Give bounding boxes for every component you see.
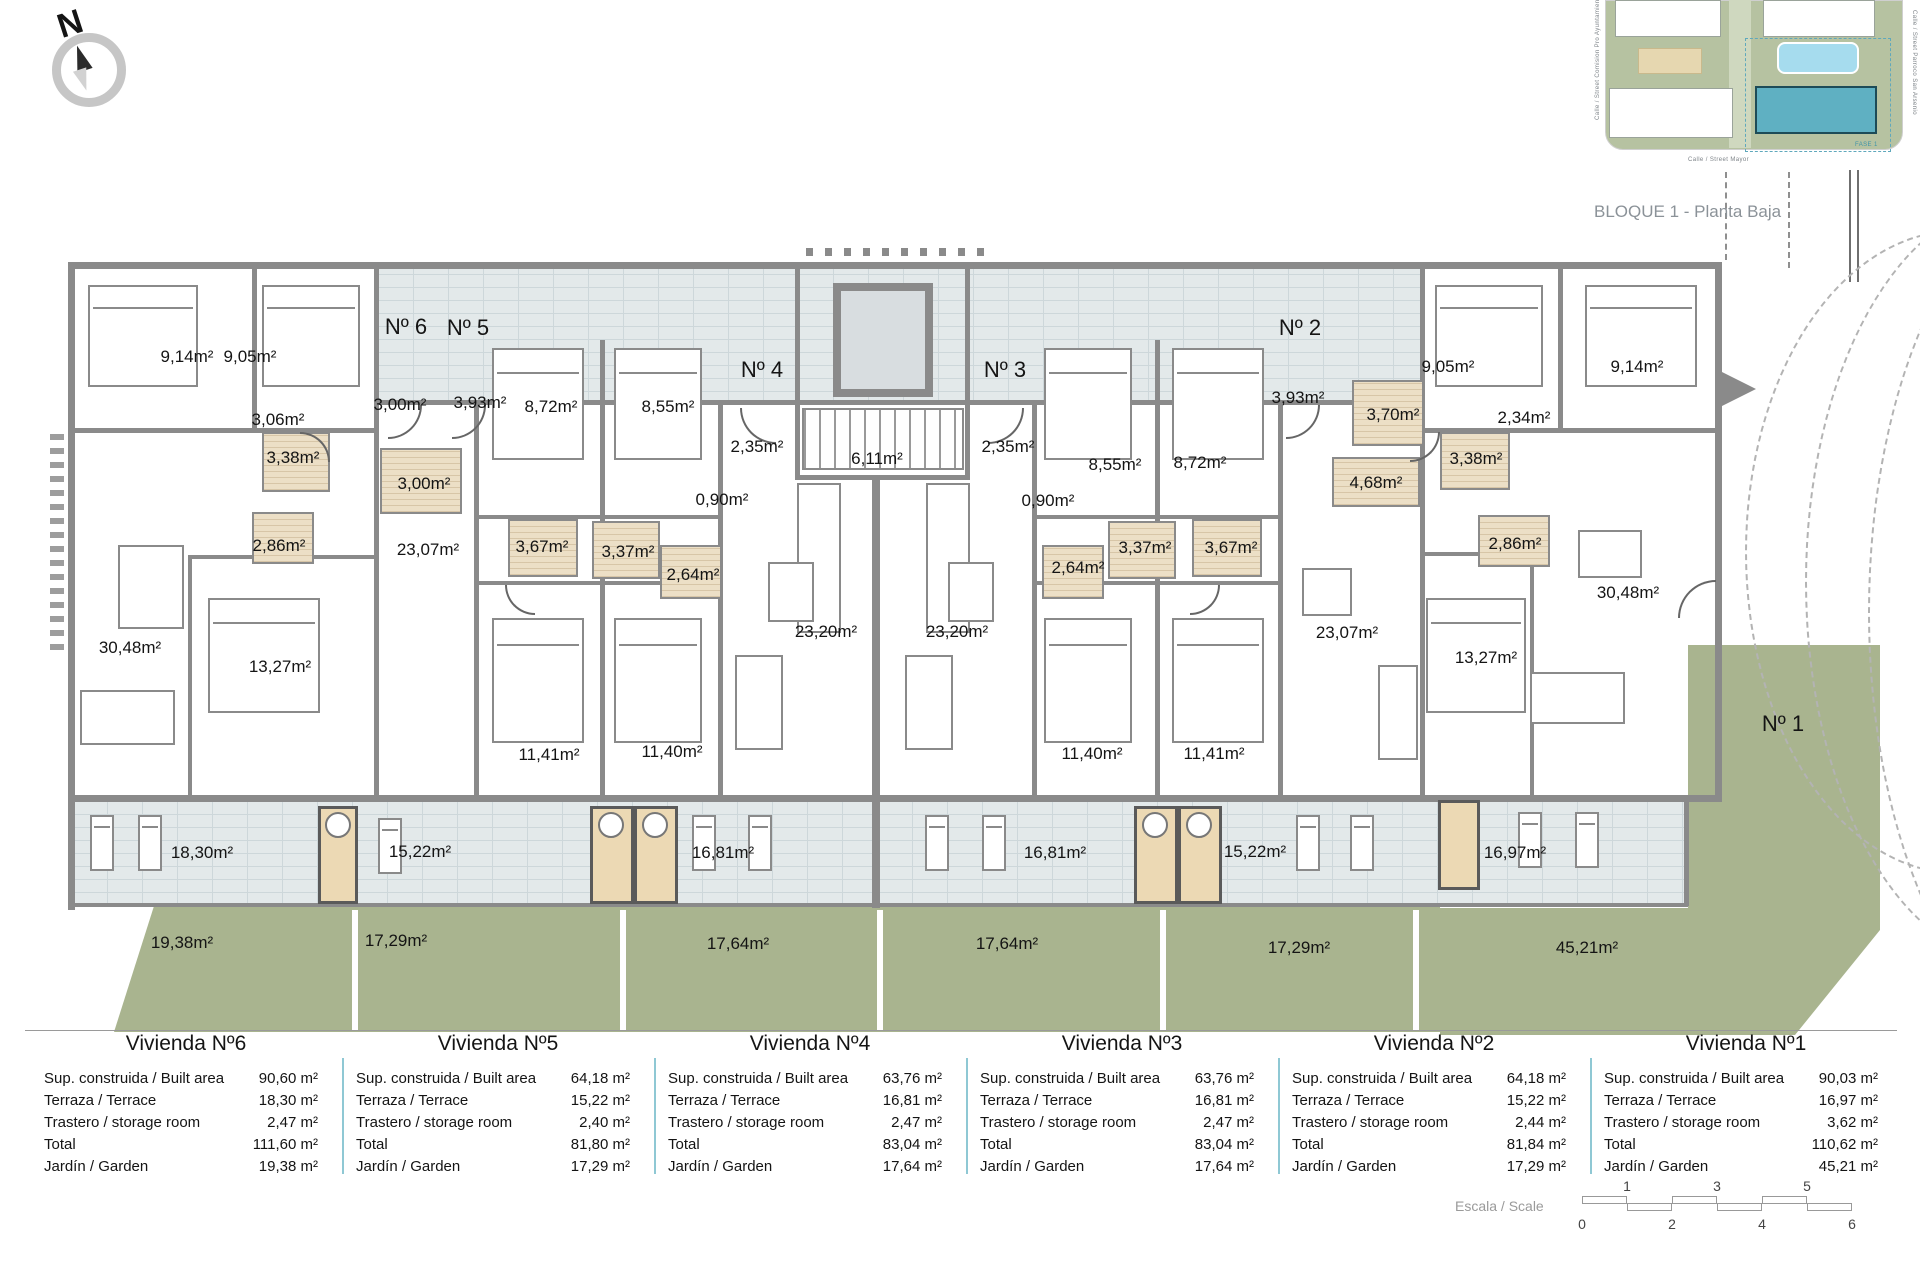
room-area-label: 2,86m² xyxy=(1489,534,1542,554)
row-value: 111,60 m² xyxy=(253,1134,318,1156)
room-area-label: 2,35m² xyxy=(982,437,1035,457)
garden-area-label: 17,64m² xyxy=(707,934,769,954)
room-area-label: 6,11m² xyxy=(851,449,903,469)
room-area-label: 23,20m² xyxy=(795,622,857,642)
row-label: Jardín / Garden xyxy=(668,1156,772,1178)
room-area-label: 23,07m² xyxy=(397,540,459,560)
row-label: Total xyxy=(980,1134,1012,1156)
room-area-label: 2,86m² xyxy=(253,536,306,556)
garden-area-label: 19,38m² xyxy=(151,933,213,953)
room-area-label: 3,38m² xyxy=(267,448,320,468)
row-label: Sup. construida / Built area xyxy=(1292,1068,1472,1090)
room-area-label: 2,35m² xyxy=(731,437,784,457)
room-area-label: 4,68m² xyxy=(1350,473,1403,493)
room-area-label: 3,67m² xyxy=(1205,538,1258,558)
row-value: 15,22 m² xyxy=(571,1090,630,1112)
row-label: Terraza / Terrace xyxy=(44,1090,156,1112)
room-area-label: 3,93m² xyxy=(1272,388,1325,408)
room-area-label: 23,07m² xyxy=(1316,623,1378,643)
row-value: 16,97 m² xyxy=(1819,1090,1878,1112)
room-area-label: 9,14m² xyxy=(161,347,214,367)
row-label: Trastero / storage room xyxy=(1604,1112,1760,1134)
unit-table-vivienda-4: Vivienda Nº4 Sup. construida / Built are… xyxy=(654,1028,966,1178)
row-value: 3,62 m² xyxy=(1827,1112,1878,1134)
room-area-label: 11,41m² xyxy=(518,745,579,765)
row-label: Trastero / storage room xyxy=(356,1112,512,1134)
scale-tick: 0 xyxy=(1578,1216,1586,1232)
scale-segment xyxy=(1762,1196,1807,1204)
row-value: 2,40 m² xyxy=(579,1112,630,1134)
unit-table-title: Vivienda Nº6 xyxy=(44,1032,328,1056)
room-area-label: 3,37m² xyxy=(1119,538,1172,558)
row-label: Total xyxy=(1292,1134,1324,1156)
scale-tick: 3 xyxy=(1713,1178,1721,1194)
garden-area-label: 17,29m² xyxy=(365,931,427,951)
row-label: Jardín / Garden xyxy=(1292,1156,1396,1178)
unit-number-label: Nº 3 xyxy=(984,357,1026,383)
row-label: Trastero / storage room xyxy=(980,1112,1136,1134)
row-value: 83,04 m² xyxy=(1195,1134,1254,1156)
room-area-label: 0,90m² xyxy=(1022,491,1075,511)
row-label: Sup. construida / Built area xyxy=(668,1068,848,1090)
room-area-label: 8,72m² xyxy=(525,397,578,417)
unit-table-title: Vivienda Nº3 xyxy=(980,1032,1264,1056)
scale-tick: 6 xyxy=(1848,1216,1856,1232)
row-label: Jardín / Garden xyxy=(44,1156,148,1178)
room-area-label: 11,41m² xyxy=(1183,744,1244,764)
room-area-label: 30,48m² xyxy=(99,638,161,658)
terrace-area-label: 16,81m² xyxy=(1024,843,1086,863)
room-area-label: 9,05m² xyxy=(224,347,277,367)
scale-tick: 4 xyxy=(1758,1216,1766,1232)
row-value: 17,64 m² xyxy=(1195,1156,1254,1178)
row-label: Jardín / Garden xyxy=(1604,1156,1708,1178)
unit-table-vivienda-2: Vivienda Nº2 Sup. construida / Built are… xyxy=(1278,1028,1590,1178)
row-value: 63,76 m² xyxy=(883,1068,942,1090)
garden-area-label: 17,64m² xyxy=(976,934,1038,954)
room-area-label: 3,00m² xyxy=(398,474,451,494)
scale-tick: 1 xyxy=(1623,1178,1631,1194)
unit-table-title: Vivienda Nº4 xyxy=(668,1032,952,1056)
row-label: Trastero / storage room xyxy=(44,1112,200,1134)
row-value: 90,03 m² xyxy=(1819,1068,1878,1090)
room-area-label: 3,00m² xyxy=(374,395,427,415)
room-area-label: 8,72m² xyxy=(1174,453,1227,473)
row-value: 15,22 m² xyxy=(1507,1090,1566,1112)
row-value: 45,21 m² xyxy=(1819,1156,1878,1178)
row-value: 17,29 m² xyxy=(571,1156,630,1178)
scale-label: Escala / Scale xyxy=(1455,1198,1544,1214)
room-area-label: 2,64m² xyxy=(667,565,720,585)
unit-number-label: Nº 5 xyxy=(447,315,489,341)
scale-bar: Escala / Scale 1 3 5 0 2 4 6 xyxy=(1455,1178,1900,1238)
unit-number-label: Nº 4 xyxy=(741,357,783,383)
room-area-label: 8,55m² xyxy=(642,397,695,417)
terrace-area-label: 15,22m² xyxy=(389,842,451,862)
row-label: Jardín / Garden xyxy=(356,1156,460,1178)
scale-segment xyxy=(1717,1203,1762,1211)
row-label: Sup. construida / Built area xyxy=(1604,1068,1784,1090)
row-value: 2,47 m² xyxy=(267,1112,318,1134)
room-area-label: 9,14m² xyxy=(1611,357,1664,377)
row-label: Sup. construida / Built area xyxy=(980,1068,1160,1090)
room-area-label: 3,67m² xyxy=(516,537,569,557)
room-area-label: 0,90m² xyxy=(696,490,749,510)
row-value: 16,81 m² xyxy=(1195,1090,1254,1112)
row-value: 64,18 m² xyxy=(571,1068,630,1090)
scale-tick: 5 xyxy=(1803,1178,1811,1194)
row-value: 83,04 m² xyxy=(883,1134,942,1156)
floorplan-sheet: N FASE 1 Calle / Street Mayor Calle / St… xyxy=(0,0,1920,1280)
room-area-label: 3,06m² xyxy=(252,410,305,430)
scale-tick: 2 xyxy=(1668,1216,1676,1232)
unit-table-vivienda-3: Vivienda Nº3 Sup. construida / Built are… xyxy=(966,1028,1278,1178)
unit-table-vivienda-6: Vivienda Nº6 Sup. construida / Built are… xyxy=(30,1028,342,1178)
room-area-label: 9,05m² xyxy=(1422,357,1475,377)
row-value: 16,81 m² xyxy=(883,1090,942,1112)
row-value: 81,84 m² xyxy=(1507,1134,1566,1156)
row-label: Terraza / Terrace xyxy=(980,1090,1092,1112)
scale-segment xyxy=(1627,1203,1672,1211)
room-area-label: 11,40m² xyxy=(1061,744,1122,764)
row-value: 19,38 m² xyxy=(259,1156,318,1178)
room-area-label: 3,70m² xyxy=(1367,405,1420,425)
room-area-label: 3,38m² xyxy=(1450,449,1503,469)
row-label: Terraza / Terrace xyxy=(668,1090,780,1112)
room-area-label: 8,55m² xyxy=(1089,455,1142,475)
unit-table-title: Vivienda Nº2 xyxy=(1292,1032,1576,1056)
row-label: Jardín / Garden xyxy=(980,1156,1084,1178)
room-area-label: 13,27m² xyxy=(249,657,311,677)
row-label: Total xyxy=(356,1134,388,1156)
row-label: Terraza / Terrace xyxy=(1604,1090,1716,1112)
scale-segment xyxy=(1807,1203,1852,1211)
garden-area-label: 17,29m² xyxy=(1268,938,1330,958)
row-label: Total xyxy=(1604,1134,1636,1156)
row-label: Trastero / storage room xyxy=(668,1112,824,1134)
room-area-label: 30,48m² xyxy=(1597,583,1659,603)
row-value: 2,44 m² xyxy=(1515,1112,1566,1134)
row-label: Terraza / Terrace xyxy=(1292,1090,1404,1112)
terrace-area-label: 18,30m² xyxy=(171,843,233,863)
row-value: 90,60 m² xyxy=(259,1068,318,1090)
terrace-area-label: 15,22m² xyxy=(1224,842,1286,862)
garden-area-label: 45,21m² xyxy=(1556,938,1618,958)
room-area-label: 23,20m² xyxy=(926,622,988,642)
unit-number-label: Nº 1 xyxy=(1762,711,1804,737)
terrace-area-label: 16,81m² xyxy=(692,843,754,863)
row-label: Total xyxy=(44,1134,76,1156)
row-value: 2,47 m² xyxy=(891,1112,942,1134)
unit-table-title: Vivienda Nº5 xyxy=(356,1032,640,1056)
scale-segment xyxy=(1672,1196,1717,1204)
room-area-label: 3,37m² xyxy=(602,542,655,562)
unit-summary-tables: Vivienda Nº6 Sup. construida / Built are… xyxy=(30,1028,1902,1178)
row-label: Sup. construida / Built area xyxy=(44,1068,224,1090)
room-area-label: 3,93m² xyxy=(454,393,507,413)
row-value: 64,18 m² xyxy=(1507,1068,1566,1090)
room-area-label: 13,27m² xyxy=(1455,648,1517,668)
terrace-area-label: 16,97m² xyxy=(1484,843,1546,863)
row-value: 2,47 m² xyxy=(1203,1112,1254,1134)
unit-table-vivienda-1: Vivienda Nº1 Sup. construida / Built are… xyxy=(1590,1028,1902,1178)
unit-table-title: Vivienda Nº1 xyxy=(1604,1032,1888,1056)
row-label: Trastero / storage room xyxy=(1292,1112,1448,1134)
row-value: 17,29 m² xyxy=(1507,1156,1566,1178)
row-value: 81,80 m² xyxy=(571,1134,630,1156)
row-value: 63,76 m² xyxy=(1195,1068,1254,1090)
row-value: 110,62 m² xyxy=(1812,1134,1878,1156)
room-area-label: 2,64m² xyxy=(1052,558,1105,578)
row-label: Terraza / Terrace xyxy=(356,1090,468,1112)
row-label: Total xyxy=(668,1134,700,1156)
scale-segment xyxy=(1582,1196,1627,1204)
unit-number-label: Nº 6 xyxy=(385,314,427,340)
unit-table-vivienda-5: Vivienda Nº5 Sup. construida / Built are… xyxy=(342,1028,654,1178)
row-label: Sup. construida / Built area xyxy=(356,1068,536,1090)
room-area-label: 2,34m² xyxy=(1498,408,1551,428)
row-value: 17,64 m² xyxy=(883,1156,942,1178)
row-value: 18,30 m² xyxy=(259,1090,318,1112)
room-area-label: 11,40m² xyxy=(641,742,702,762)
unit-number-label: Nº 2 xyxy=(1279,315,1321,341)
